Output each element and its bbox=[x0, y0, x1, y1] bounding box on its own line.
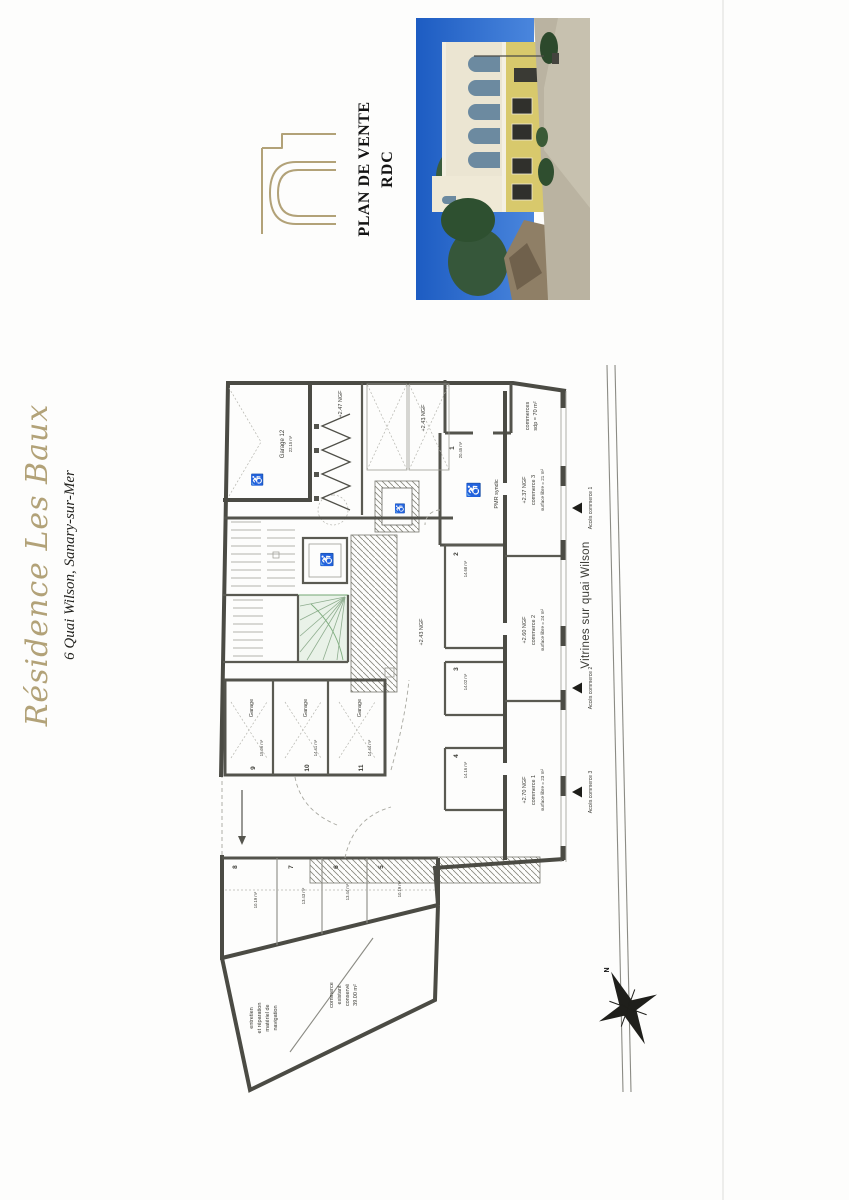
acces-arrow-icon bbox=[572, 503, 582, 514]
plan-title: PLAN DE VENTE bbox=[356, 100, 374, 238]
svg-text:14.44 m²: 14.44 m² bbox=[367, 739, 372, 756]
photo-tree-front bbox=[441, 198, 495, 242]
acces-commerce-3: Accès commerce 3 bbox=[572, 771, 594, 814]
svg-text:14.02 m²: 14.02 m² bbox=[463, 673, 468, 690]
svg-text:22.15 m²: 22.15 m² bbox=[288, 435, 293, 452]
svg-text:conservé: conservé bbox=[345, 984, 351, 1006]
scanned-plan-page: Résidence Les Baux 6 Quai Wilson, Sanary… bbox=[0, 0, 849, 1200]
commerce-3-room: +2.37 NGF commerce 3 surface libre = 21 … bbox=[522, 469, 545, 511]
svg-text:et réparation: et réparation bbox=[257, 1003, 263, 1034]
svg-text:commerce 1: commerce 1 bbox=[531, 775, 537, 805]
wheelchair-icon: ♿ bbox=[320, 552, 334, 567]
garage-crosses bbox=[231, 510, 440, 858]
svg-text:surface libre = 24 m²: surface libre = 24 m² bbox=[540, 609, 545, 651]
svg-text:+2.37 NGF: +2.37 NGF bbox=[522, 476, 528, 504]
svg-text:20.45 m²: 20.45 m² bbox=[458, 441, 463, 458]
level-parking: +2.43 NGF bbox=[421, 404, 427, 432]
existing-commerce-label: commerce existant conservé 39.00 m² bbox=[329, 982, 359, 1008]
svg-text:Accès commerce 1: Accès commerce 1 bbox=[588, 487, 594, 530]
acces-commerce-2: Accès commerce 2 bbox=[572, 667, 594, 710]
room-2: 2 14.68 m² bbox=[453, 552, 468, 577]
svg-text:surface libre = 21 m²: surface libre = 21 m² bbox=[540, 469, 545, 511]
wheelchair-icon: ♿ bbox=[466, 482, 481, 498]
svg-text:1: 1 bbox=[449, 446, 456, 450]
svg-text:14.41 m²: 14.41 m² bbox=[313, 739, 318, 756]
svg-text:14.68 m²: 14.68 m² bbox=[463, 560, 468, 577]
svg-text:9: 9 bbox=[250, 766, 257, 770]
logo-inner-arch bbox=[278, 170, 336, 216]
photo-scooter bbox=[552, 53, 559, 64]
acces-arrow-icon bbox=[572, 683, 582, 694]
svg-text:commerces: commerces bbox=[525, 402, 531, 431]
level-hall: +2.43 NGF bbox=[419, 618, 425, 646]
svg-text:Garage 12: Garage 12 bbox=[280, 429, 286, 458]
svg-text:Garage: Garage bbox=[357, 699, 363, 717]
svg-text:15.06 m²: 15.06 m² bbox=[259, 739, 264, 756]
pmr-parking-box: ♿ bbox=[375, 481, 419, 532]
moto-bays-zigzag bbox=[314, 414, 350, 510]
svg-text:commerce: commerce bbox=[329, 982, 335, 1008]
svg-text:2: 2 bbox=[453, 552, 460, 556]
logo-outer-arch bbox=[270, 162, 336, 224]
ramp-arrow bbox=[238, 836, 246, 845]
plan-title-block: PLAN DE VENTE RDC bbox=[356, 100, 397, 238]
svg-text:8: 8 bbox=[232, 865, 239, 869]
commerce-1-room: +2.70 NGF commerce 1 surface libre = 23 … bbox=[522, 769, 545, 811]
room-7: 7 13.43 m² bbox=[288, 865, 306, 904]
wheelchair-icon: ♿ bbox=[251, 473, 264, 487]
svg-text:13.43 m²: 13.43 m² bbox=[301, 887, 306, 904]
svg-text:Accès commerce 2: Accès commerce 2 bbox=[588, 667, 594, 710]
svg-text:Garage: Garage bbox=[249, 699, 255, 717]
garage-12-room: ♿ Garage 12 22.15 m² bbox=[251, 429, 293, 487]
vitrines-label: Vitrines sur quai Wilson bbox=[580, 541, 592, 668]
svg-text:sdp = 70 m²: sdp = 70 m² bbox=[533, 401, 539, 430]
turning-circle bbox=[318, 495, 348, 525]
svg-text:surface libre = 23 m²: surface libre = 23 m² bbox=[540, 769, 545, 811]
svg-text:7: 7 bbox=[288, 865, 295, 869]
svg-text:14.16 m²: 14.16 m² bbox=[463, 761, 468, 778]
svg-text:navigation: navigation bbox=[273, 1005, 279, 1030]
pmr-room: 1 20.45 m² ♿ PMR syndic bbox=[449, 441, 500, 509]
page-title: Résidence Les Baux bbox=[20, 400, 55, 730]
svg-text:5: 5 bbox=[378, 865, 385, 869]
garage-9: Garage 9 15.06 m² bbox=[249, 699, 264, 770]
svg-text:6: 6 bbox=[333, 865, 340, 869]
wheelchair-icon: ♿ bbox=[394, 503, 405, 514]
svg-text:Accès commerce 3: Accès commerce 3 bbox=[588, 771, 594, 814]
logo-step-line bbox=[262, 134, 336, 148]
existing-wall-hatch-1 bbox=[351, 535, 397, 692]
svg-text:Garage: Garage bbox=[303, 699, 309, 717]
svg-text:3: 3 bbox=[453, 667, 460, 671]
room-4: 4 14.16 m² bbox=[453, 754, 468, 778]
photo-bush-1 bbox=[538, 158, 554, 186]
floor-plan: ♿ ♿ bbox=[195, 350, 765, 1110]
photo-bush-2 bbox=[536, 127, 548, 147]
svg-text:PMR syndic: PMR syndic bbox=[494, 479, 500, 509]
existing-workshop-label: entretien et réparation matériel de navi… bbox=[249, 1003, 279, 1034]
svg-text:4: 4 bbox=[453, 754, 460, 758]
acces-arrow-icon bbox=[572, 787, 582, 798]
svg-text:11: 11 bbox=[358, 764, 365, 771]
svg-text:10: 10 bbox=[304, 764, 311, 772]
elevator: ♿ bbox=[303, 538, 347, 583]
svg-text:10.19 m²: 10.19 m² bbox=[397, 880, 402, 897]
level-corridor: +2.47 NGF bbox=[338, 390, 344, 418]
bike-racks bbox=[231, 522, 295, 656]
landscape-sheet: Résidence Les Baux 6 Quai Wilson, Sanary… bbox=[0, 0, 849, 1200]
page-subtitle: 6 Quai Wilson, Sanary-sur-Mer bbox=[62, 400, 79, 730]
photo-floor-slab bbox=[502, 42, 506, 212]
commerce-2-room: +2.60 NGF commerce 2 surface libre = 24 … bbox=[522, 609, 545, 651]
existing-wall-hatch-2 bbox=[310, 857, 540, 883]
room-3: 3 14.02 m² bbox=[453, 667, 468, 690]
svg-text:+2.70 NGF: +2.70 NGF bbox=[522, 776, 528, 804]
vitrine-facade bbox=[561, 391, 566, 862]
svg-text:13.44 m²: 13.44 m² bbox=[345, 883, 350, 900]
commerces-total-label: commerces sdp = 70 m² bbox=[525, 401, 539, 430]
building-photo bbox=[416, 18, 590, 300]
svg-text:10.19 m²: 10.19 m² bbox=[253, 891, 258, 908]
room-8: 8 10.19 m² bbox=[232, 865, 258, 908]
staircase bbox=[298, 595, 348, 662]
svg-text:commerce 3: commerce 3 bbox=[531, 475, 537, 505]
svg-text:+2.60 NGF: +2.60 NGF bbox=[522, 616, 528, 644]
arch-logo-icon bbox=[250, 114, 342, 240]
plan-level: RDC bbox=[379, 100, 397, 238]
north-label: N bbox=[604, 967, 611, 972]
svg-text:commerce 2: commerce 2 bbox=[531, 615, 537, 645]
svg-text:existant: existant bbox=[337, 985, 343, 1004]
svg-text:entretien: entretien bbox=[249, 1007, 255, 1028]
svg-text:matériel de: matériel de bbox=[265, 1004, 271, 1031]
acces-commerce-1: Accès commerce 1 bbox=[572, 487, 594, 530]
svg-text:39.00 m²: 39.00 m² bbox=[353, 984, 359, 1006]
